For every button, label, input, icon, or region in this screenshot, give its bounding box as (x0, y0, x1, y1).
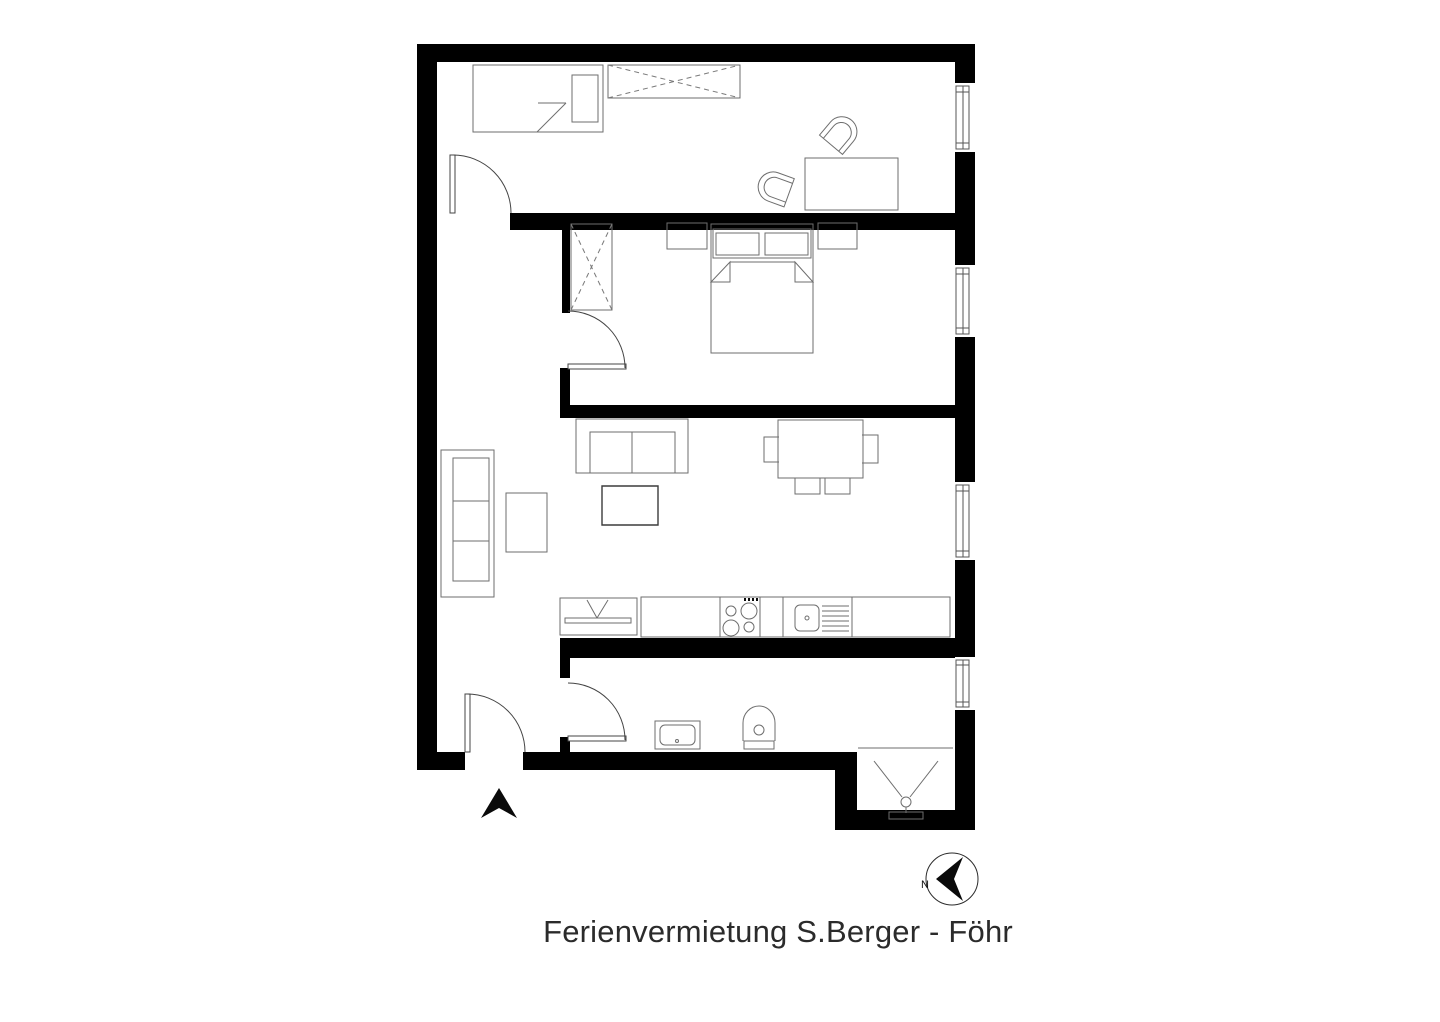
door-bedroom-top (450, 155, 511, 213)
shell-chair-2 (754, 168, 794, 207)
three-seat-sofa (441, 450, 494, 597)
toilet (743, 706, 775, 749)
compass: N (921, 853, 978, 905)
kitchen-sink (795, 605, 849, 631)
shell-chair-1 (820, 111, 864, 155)
compass-needle-icon (936, 857, 963, 901)
compass-north-label: N (921, 879, 929, 891)
coffee-table (602, 486, 658, 525)
bedroom-top-furniture (473, 65, 898, 210)
wardrobe-x (608, 65, 740, 98)
stove-burners (723, 598, 758, 636)
window-living-room (956, 485, 969, 557)
window-bedroom-middle (956, 268, 969, 334)
doors (450, 155, 626, 752)
entrance-arrow (481, 788, 517, 818)
door-bedroom-middle (568, 311, 626, 369)
floorplan-drawing: N (0, 0, 1440, 1022)
dining-chairs (764, 435, 878, 494)
plan-title: Ferienvermietung S.Berger - Föhr (488, 914, 1068, 950)
shower (858, 748, 953, 819)
living-room-furniture (441, 419, 878, 635)
door-bathroom (568, 683, 626, 741)
loveseat (576, 419, 688, 473)
window-bedroom-top (956, 86, 969, 149)
door-entrance (465, 694, 525, 752)
floorplan-canvas: N Ferienvermietung S.Berger - Föhr (0, 0, 1440, 1022)
window-bathroom (956, 660, 969, 707)
desk (805, 158, 898, 210)
double-bed (711, 224, 813, 353)
kitchen (641, 597, 950, 637)
washbasin (655, 721, 700, 749)
side-table (506, 493, 547, 552)
walls (417, 44, 975, 830)
tv-board (560, 598, 637, 635)
wardrobe-x (571, 224, 612, 310)
dining-table (778, 420, 863, 478)
single-bed (473, 65, 603, 132)
